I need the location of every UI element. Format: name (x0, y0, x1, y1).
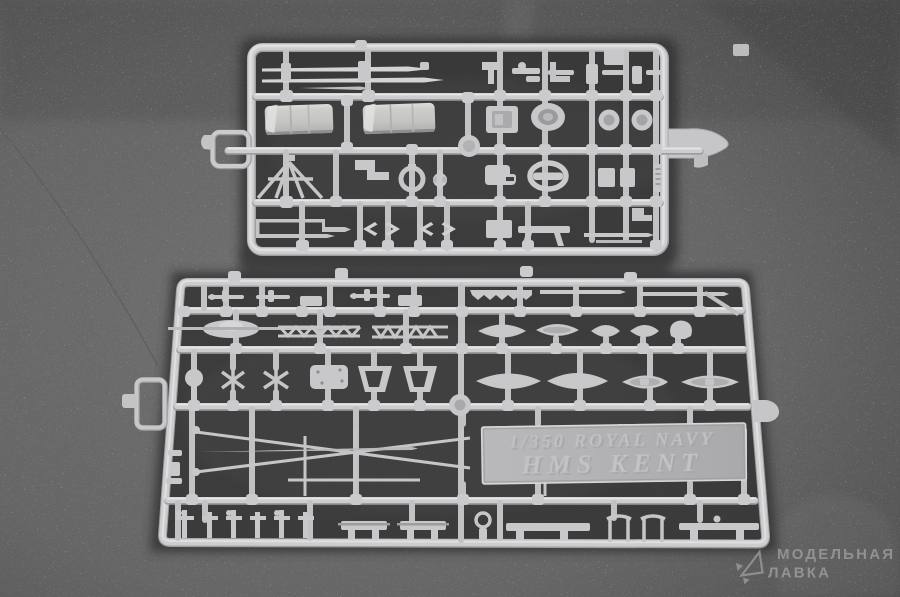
svg-text:МОДЕЛЬНАЯ: МОДЕЛЬНАЯ (777, 546, 895, 563)
svg-text:ЛАВКА: ЛАВКА (768, 565, 831, 582)
svg-text:HMS KENT: HMS KENT (520, 448, 703, 480)
